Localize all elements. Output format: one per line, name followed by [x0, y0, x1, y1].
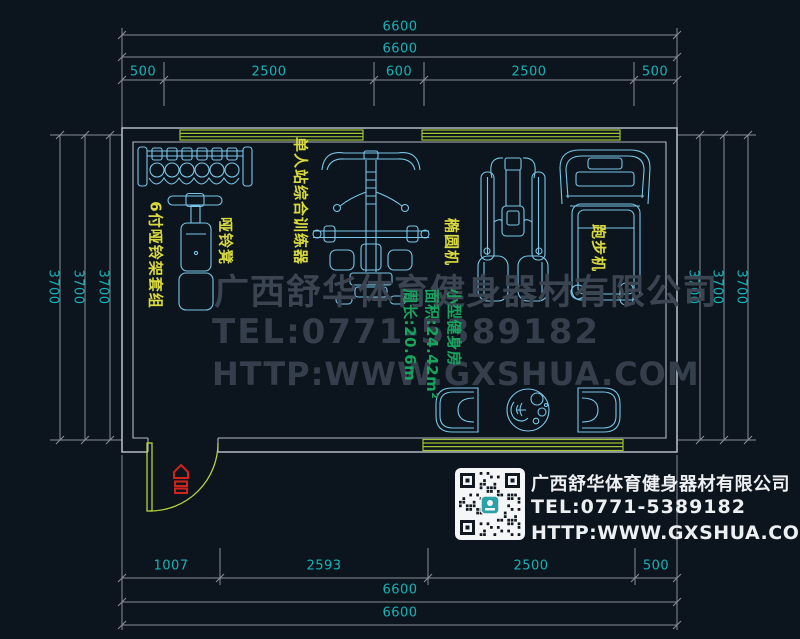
dim-top-seg-3: 600 [386, 65, 412, 80]
contact-website: HTTP:WWW.GXSHUA.COM [531, 522, 800, 544]
label-dumbbell-rack: 6付哑铃架套组 [146, 201, 167, 308]
dim-left-3: 3700 [96, 269, 111, 304]
dim-bottom-overall-2: 6600 [382, 606, 417, 621]
dim-left-1: 3700 [46, 269, 61, 304]
dim-top-seg-1: 500 [130, 65, 156, 80]
entrance-icon [174, 465, 188, 493]
dumbbell-rack-drawing [138, 147, 252, 186]
dim-right-3: 3700 [734, 269, 749, 304]
label-elliptical: 椭圆机 [442, 218, 463, 266]
dim-bottom-seg-2: 2593 [306, 559, 341, 574]
dim-bottom-seg-4: 500 [643, 559, 669, 574]
contact-tel: TEL:0771-5389182 [531, 496, 746, 518]
dim-bottom-overall-1: 6600 [382, 583, 417, 598]
label-dumbbell-bench: 哑铃凳 [216, 217, 237, 265]
room-area: 面积:24.42m² [421, 289, 443, 400]
room-perimeter: 周长:20.6m [399, 289, 421, 400]
dim-top-seg-4: 2500 [511, 65, 546, 80]
dim-top-overall-1: 6600 [382, 20, 417, 35]
label-multi-gym: 单人站综合训练器 [291, 137, 312, 265]
dim-top-seg-5: 500 [642, 65, 668, 80]
watermark-company: 广西舒华体育健身器材有限公司 [214, 264, 718, 315]
dim-bottom-seg-1: 1007 [153, 559, 188, 574]
cad-canvas: 6600 6600 500 2500 600 2500 500 1007 259… [0, 0, 800, 639]
dim-left-2: 3700 [71, 269, 86, 304]
dim-bottom-seg-3: 2500 [513, 559, 548, 574]
dim-top-seg-2: 2500 [251, 65, 286, 80]
room-label: 小型健身房 面积:24.42m² 周长:20.6m [399, 289, 465, 400]
sofa-right [578, 388, 620, 432]
qr-code [455, 468, 525, 540]
room-name: 小型健身房 [443, 289, 465, 400]
contact-company: 广西舒华体育健身器材有限公司 [531, 470, 790, 496]
tea-table-with-plant [507, 389, 549, 431]
label-treadmill: 跑步机 [589, 224, 610, 272]
dim-top-overall-2: 6600 [382, 42, 417, 57]
